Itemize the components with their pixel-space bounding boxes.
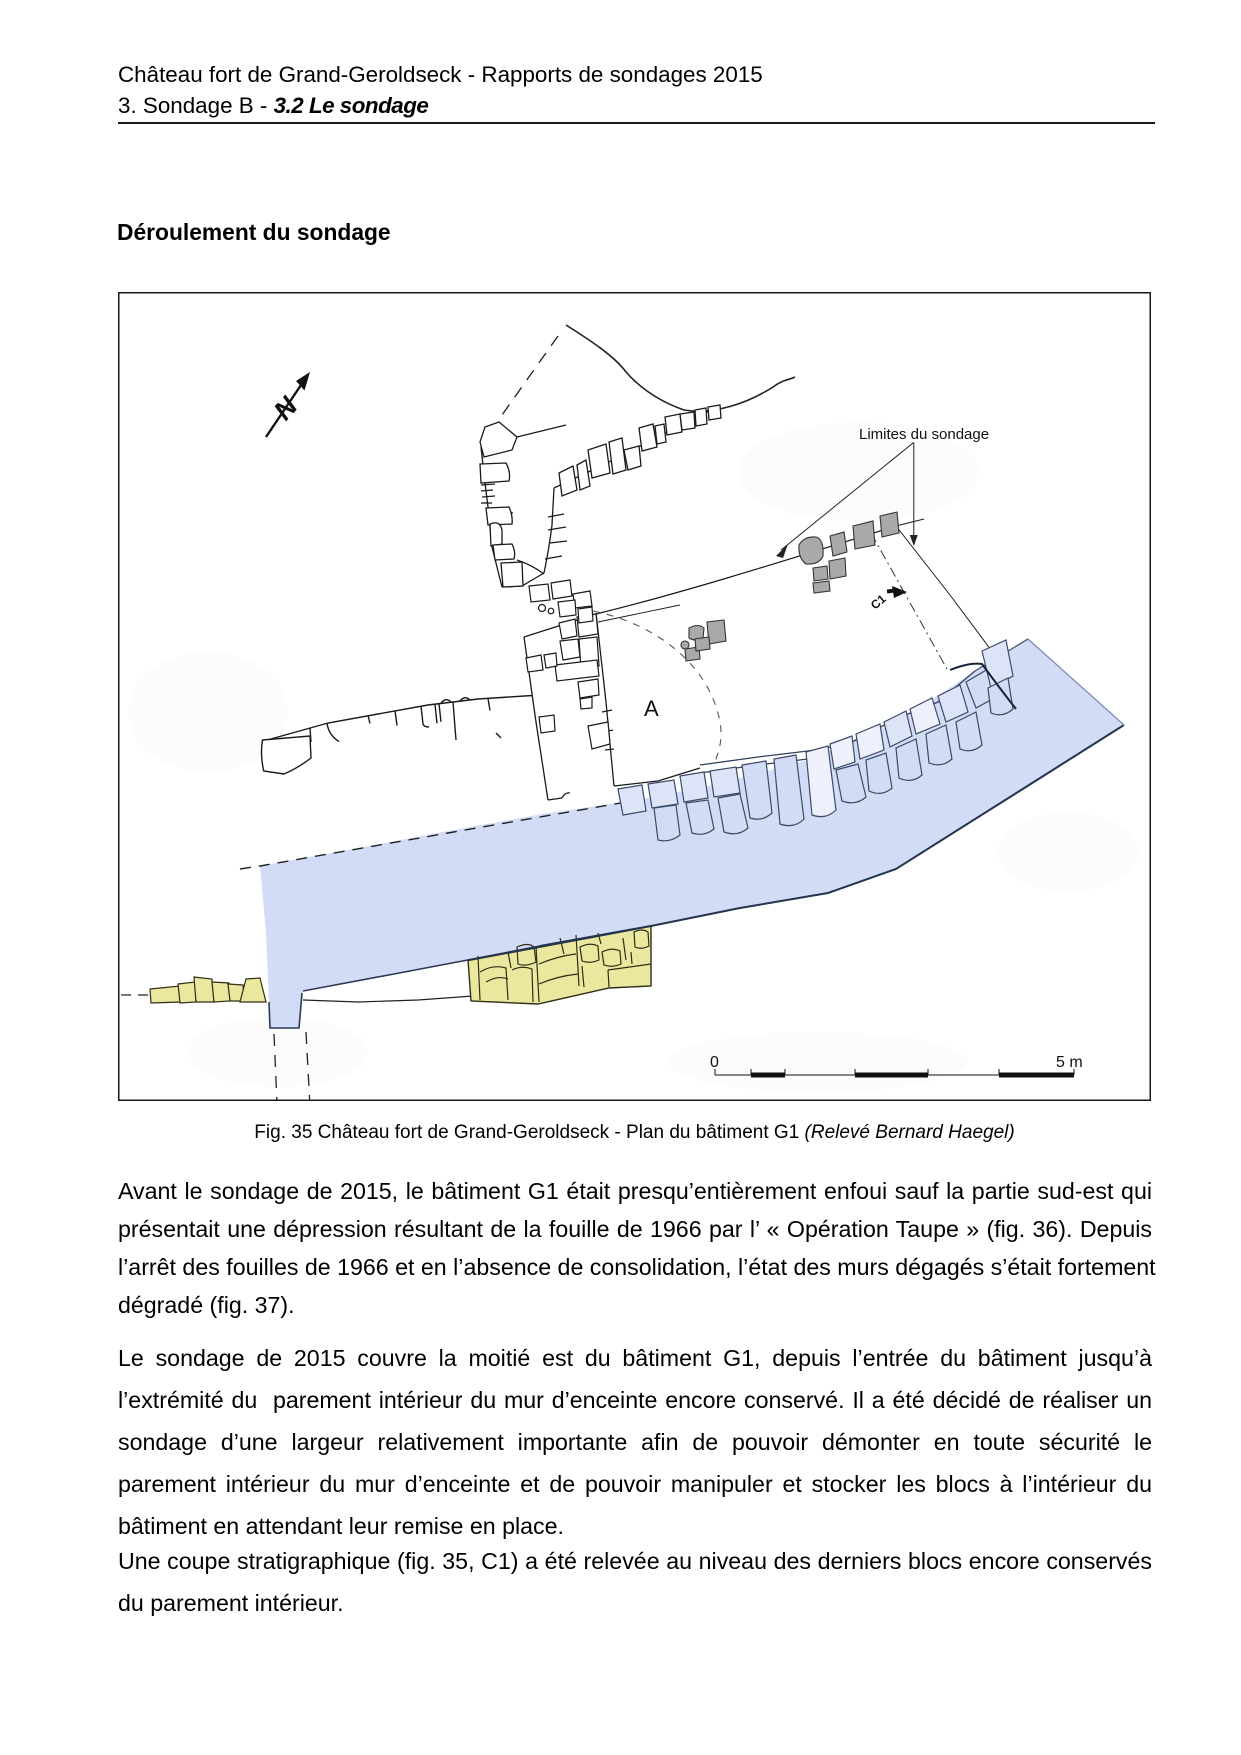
svg-text:0: 0 <box>710 1054 719 1071</box>
svg-text:Limites du sondage: Limites du sondage <box>859 426 989 443</box>
svg-text:5 m: 5 m <box>1056 1054 1083 1071</box>
svg-text:A: A <box>644 696 659 721</box>
